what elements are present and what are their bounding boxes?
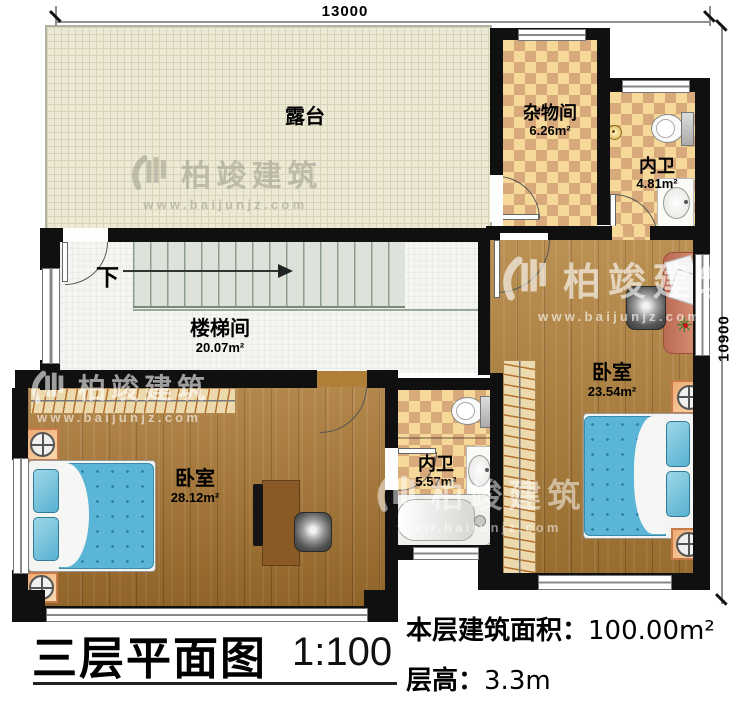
wall: [490, 373, 503, 575]
faucet-dot-icon: [684, 200, 688, 204]
room-label-terrace: 露台: [285, 106, 325, 129]
dimension-top-label: 13000: [300, 3, 390, 20]
wall: [108, 228, 490, 242]
stair-treads: [133, 242, 405, 308]
floor-area-line: 本层建筑面积：100.00m²: [406, 610, 715, 647]
doorway-terrace: [63, 228, 108, 242]
bed-right-pillow-1: [666, 421, 690, 467]
floor-area-value: 100.00m²: [588, 616, 715, 646]
window-storage-top: [518, 29, 586, 41]
doorway-bathroom-top: [612, 226, 650, 240]
room-label-storage: 杂物间 6.26m²: [523, 103, 577, 139]
stair-direction-line: [123, 270, 279, 272]
room-area: 23.54m²: [588, 385, 636, 400]
bed-right-sheet-fold: [634, 416, 666, 534]
door-leaf: [62, 242, 68, 282]
bedroom-left-wardrobe: [30, 388, 236, 414]
wall: [490, 28, 503, 175]
stair-down-label: 下: [96, 258, 119, 292]
wall: [398, 378, 503, 390]
window-bedroom-right-bottom: [538, 575, 672, 590]
wall: [40, 228, 60, 270]
room-area: 20.07m²: [190, 341, 250, 356]
room-name: 卧室: [171, 468, 219, 491]
dimension-line-top: [55, 21, 710, 23]
floor-height-line: 层高：3.3m: [406, 660, 551, 697]
wall: [15, 370, 317, 388]
room-name: 内卫: [415, 454, 456, 475]
bed-right: [583, 413, 695, 539]
room-name: 卧室: [588, 362, 636, 385]
room-name: 露台: [285, 106, 325, 129]
room-area: 4.81m²: [636, 177, 677, 192]
wall-corner: [12, 590, 45, 622]
room-area: 5.57m²: [415, 475, 456, 490]
bed-left-pillow-2: [33, 517, 59, 561]
desk-chair-right: [626, 286, 666, 330]
room-label-bedroom-left: 卧室 28.12m²: [171, 468, 219, 506]
room-label-bedroom-right: 卧室 23.54m²: [588, 362, 636, 400]
plan-scale: 1:100: [292, 630, 392, 675]
wall: [12, 388, 28, 460]
floor-height-value: 3.3m: [484, 666, 551, 696]
floor-area-label: 本层建筑面积：: [406, 615, 588, 645]
room-label-bath-top: 内卫 4.81m²: [636, 156, 677, 192]
dimension-right-label: 10900: [716, 311, 733, 367]
doorway-bathroom-mid: [385, 448, 398, 490]
stair-edge-line: [133, 309, 478, 311]
desk-chair-left: [294, 512, 332, 552]
room-area: 28.12m²: [171, 491, 219, 506]
bedroom-right-wardrobe: [503, 360, 536, 574]
plan-title: 三层平面图: [32, 622, 267, 687]
wall: [597, 28, 610, 225]
bed-left: [28, 460, 156, 572]
wall: [650, 226, 698, 240]
window-stairwell-left: [42, 268, 60, 364]
room-name: 楼梯间: [190, 318, 250, 341]
wall-corner: [478, 556, 502, 590]
floor-height-label: 层高：: [406, 665, 484, 695]
room-area: 6.26m²: [523, 124, 577, 139]
bed-right-pillow-2: [666, 471, 690, 517]
window-bathroom-mid: [413, 547, 479, 560]
wall-lintel: [500, 226, 548, 233]
stool-ring-icon: [30, 432, 55, 457]
room-label-bath-mid: 内卫 5.57m²: [415, 454, 456, 490]
plant-icon: ✳: [676, 316, 693, 336]
wall: [548, 226, 612, 240]
stair-direction-arrow-icon: [278, 264, 293, 278]
bedside-stool-1: [26, 428, 59, 461]
window-bedroom-left-side: [13, 458, 29, 574]
door-leaf: [494, 240, 500, 298]
window-bedroom-right-side: [695, 254, 710, 356]
doorway-bedroom-left: [317, 371, 367, 387]
room-name: 杂物间: [523, 103, 577, 124]
room-label-stairwell: 楼梯间 20.07m²: [190, 318, 250, 356]
room-name: 内卫: [636, 156, 677, 177]
title-underline: [33, 682, 397, 685]
window-bathroom-top: [622, 80, 690, 93]
bathroom-mid-divider-line: [398, 437, 490, 439]
toilet-top-icon: [651, 114, 684, 143]
faucet-dot-icon: [485, 468, 489, 472]
tv-icon: [253, 484, 263, 546]
door-leaf: [497, 214, 539, 220]
bed-left-pillow-1: [33, 469, 59, 513]
floor-plan-canvas: 下 ✳: [0, 0, 750, 705]
wall: [695, 78, 710, 240]
bathtub-icon: [391, 494, 492, 546]
toilet-top-tank: [681, 112, 694, 146]
terrace-floor: [45, 25, 492, 232]
wall: [478, 228, 490, 375]
doorway-storage: [490, 175, 503, 222]
window-bedroom-left-bottom: [46, 608, 368, 622]
wall: [385, 370, 398, 450]
